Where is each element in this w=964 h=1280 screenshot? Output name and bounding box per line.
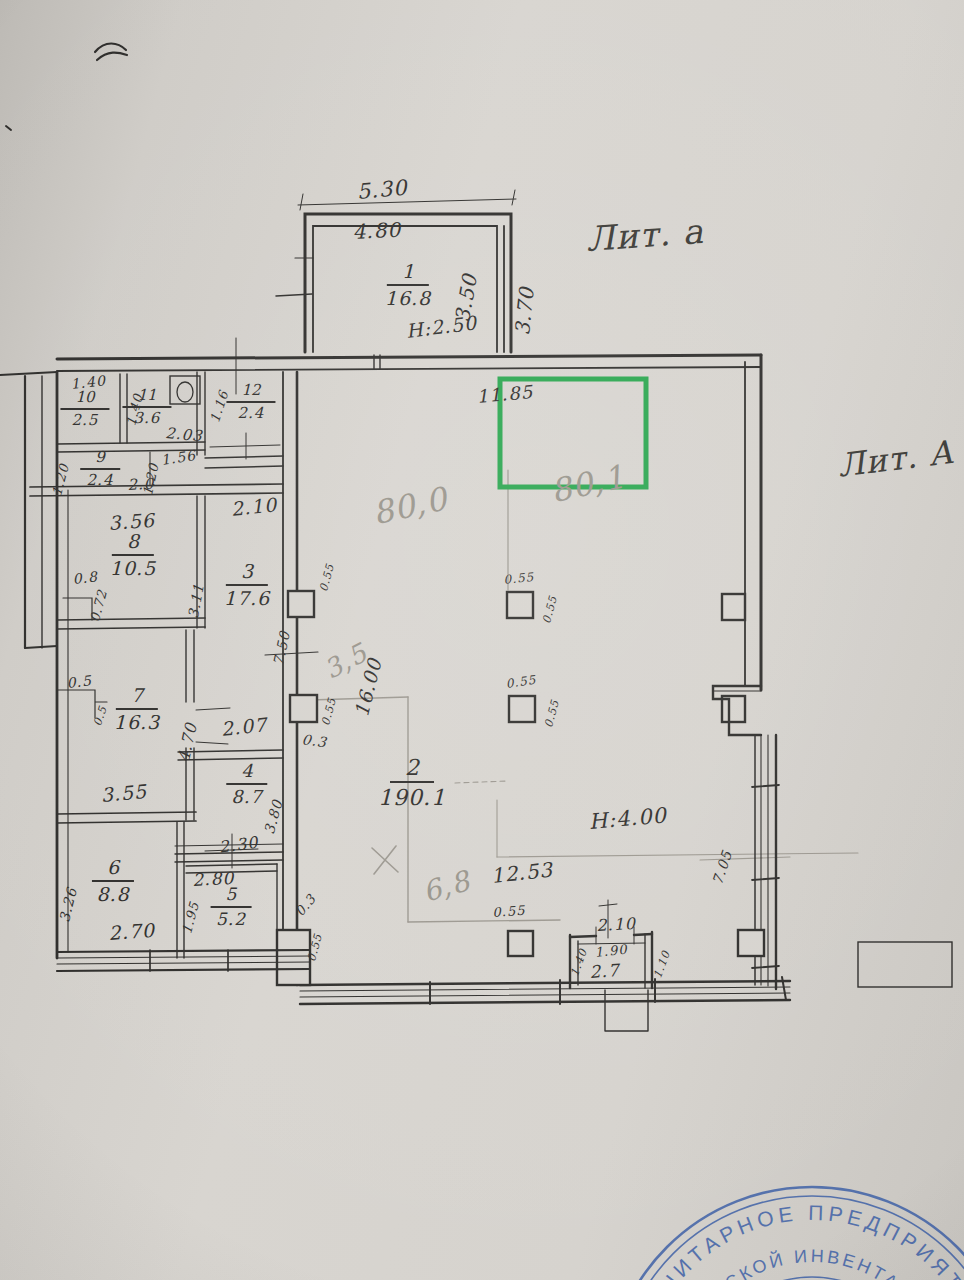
room-area: 8.8 xyxy=(92,885,134,905)
room-label-1: 116.8 xyxy=(385,262,431,309)
room-number: 10 xyxy=(60,390,109,410)
room-area: 5.2 xyxy=(211,911,252,929)
dimension-label: 12.53 xyxy=(490,859,554,885)
room-area: 2.4 xyxy=(80,473,120,489)
room-number: 12 xyxy=(226,383,275,403)
room-number: 8 xyxy=(112,532,154,556)
room-label-11: 113.6 xyxy=(122,388,171,427)
room-number: 3 xyxy=(226,562,268,586)
room-number: 6 xyxy=(92,858,134,882)
dimension-label: 0.5 xyxy=(66,673,93,690)
room-label-10: 102.5 xyxy=(60,390,109,429)
dimension-label: 2.70 xyxy=(108,921,156,943)
dimension-label: 3.55 xyxy=(100,782,148,805)
room-area: 16.3 xyxy=(114,713,160,733)
dimension-label: 1.90 xyxy=(594,943,628,959)
dimension-label: 3.70 xyxy=(512,286,537,336)
room-label-2: 2190.1 xyxy=(378,756,446,809)
room-area: 2.5 xyxy=(60,413,109,429)
dimension-label: 0.3 xyxy=(301,732,328,749)
dimension-label: 11.85 xyxy=(476,383,534,406)
stamp-outer-text: НИТАРНОЕ ПРЕДПРИЯТ xyxy=(655,1201,964,1280)
room-number: 2 xyxy=(390,756,434,783)
dimension-label: 2.10 xyxy=(230,495,278,519)
dimension-label: 0.55 xyxy=(503,571,535,586)
stamp-inner-text: ИЧЕСКОЙ ИНВЕНТАРИЗ xyxy=(687,1246,937,1280)
dimension-label: 2.10 xyxy=(596,916,636,934)
room-number: 11 xyxy=(122,388,171,408)
room-area: 10.5 xyxy=(110,559,156,579)
room-label-3: 317.6 xyxy=(224,562,270,609)
dimension-label: 5.30 xyxy=(356,178,408,203)
room-label-6: 68.8 xyxy=(92,858,134,905)
room-label-7: 716.3 xyxy=(114,686,160,733)
dimension-label: 4.80 xyxy=(352,219,402,242)
room-label-9: 92.4 xyxy=(80,450,120,489)
stamp: НИТАРНОЕ ПРЕДПРИЯТ ИЧЕСКОЙ ИНВЕНТАРИЗ xyxy=(607,1187,964,1280)
litera-annotation-top: Лит. а xyxy=(585,214,705,256)
room-number: 1 xyxy=(387,262,429,286)
dimension-label: 2.7 xyxy=(589,962,620,981)
svg-text:ИЧЕСКОЙ ИНВЕНТАРИЗ: ИЧЕСКОЙ ИНВЕНТАРИЗ xyxy=(687,1246,937,1280)
room-area: 2.4 xyxy=(226,406,275,422)
plan-linework: НИТАРНОЕ ПРЕДПРИЯТ ИЧЕСКОЙ ИНВЕНТАРИЗ xyxy=(0,0,964,1280)
room-area: 8.7 xyxy=(226,788,267,807)
room-area: 3.6 xyxy=(122,411,171,427)
room-number: 4 xyxy=(226,762,267,785)
room-number: 7 xyxy=(116,686,158,710)
floor-plan-scan: НИТАРНОЕ ПРЕДПРИЯТ ИЧЕСКОЙ ИНВЕНТАРИЗ Ли… xyxy=(0,0,964,1280)
room-area: 17.6 xyxy=(224,589,270,609)
room-area: 190.1 xyxy=(378,786,446,809)
dimension-label: 0.55 xyxy=(492,904,526,919)
dimension-label: 0.8 xyxy=(72,569,99,586)
dimension-label: 2.07 xyxy=(220,715,268,739)
room-label-8: 810.5 xyxy=(110,532,156,579)
room-label-12: 122.4 xyxy=(226,383,275,422)
dimension-label: 2.03 xyxy=(165,426,204,444)
room-number: 9 xyxy=(80,450,120,470)
room-label-4: 48.7 xyxy=(226,762,267,807)
room-area: 16.8 xyxy=(385,289,431,309)
svg-text:НИТАРНОЕ ПРЕДПРИЯТ: НИТАРНОЕ ПРЕДПРИЯТ xyxy=(655,1201,964,1280)
room-label-5: 55.2 xyxy=(211,886,252,929)
room-number: 5 xyxy=(211,886,252,908)
